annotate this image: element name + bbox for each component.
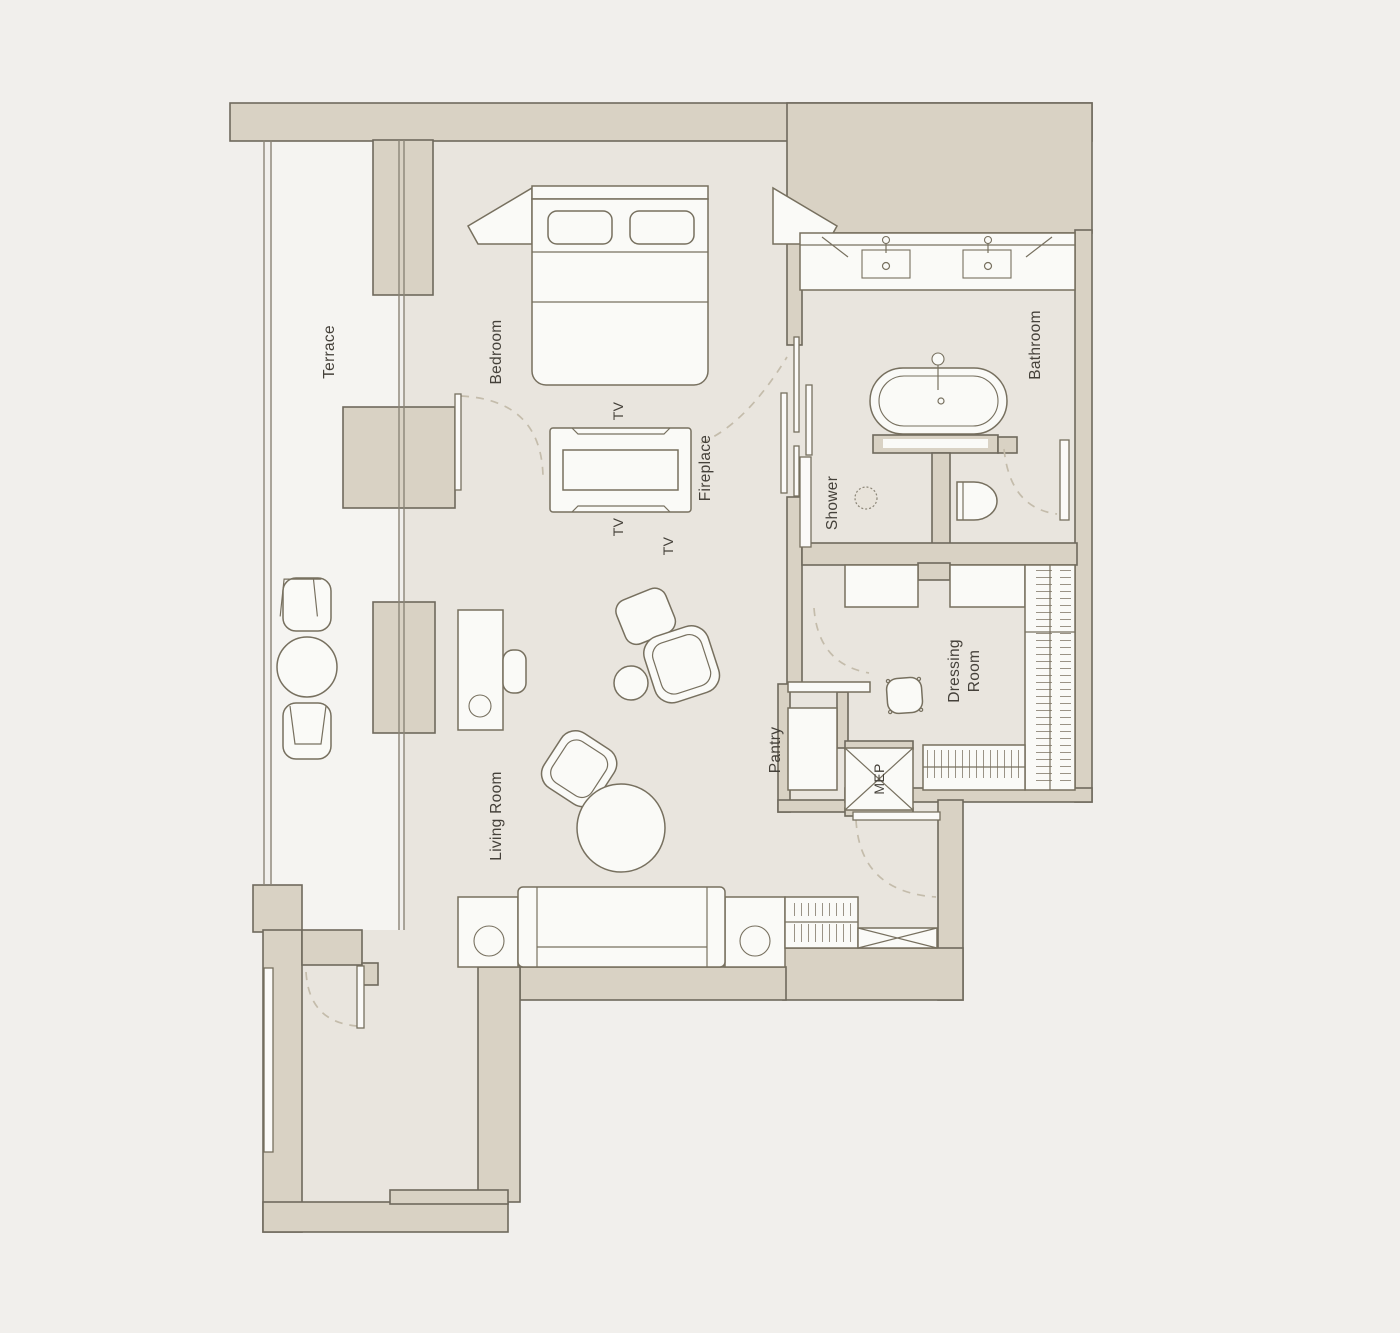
sofa xyxy=(518,887,725,967)
fireplace-tv-console xyxy=(550,428,691,512)
vanity xyxy=(800,233,1075,290)
sink-right xyxy=(963,250,1011,278)
foyer-east-wall xyxy=(478,967,520,1202)
sink-left xyxy=(862,250,910,278)
slat-3 xyxy=(794,446,799,496)
foyer-south-step xyxy=(390,1190,508,1204)
terrace-south-pier xyxy=(253,885,302,932)
east-wall xyxy=(1075,230,1092,802)
south-wall-mid xyxy=(520,967,786,1000)
terrace-set xyxy=(277,578,337,759)
toilet xyxy=(957,482,997,520)
fireplace-insert xyxy=(563,450,678,490)
bath-dressing-wall xyxy=(802,543,1077,565)
headboard xyxy=(532,186,708,199)
faucet-right xyxy=(985,237,992,244)
slat-2 xyxy=(794,337,799,432)
closet-stub xyxy=(918,563,950,580)
coffee-table xyxy=(577,784,665,872)
foyer-north-wall xyxy=(302,930,362,965)
pantry-cabinet xyxy=(788,708,837,790)
floor-plan-drawing xyxy=(0,0,1400,1333)
pillow-left xyxy=(548,211,612,244)
west-pier-top xyxy=(373,140,433,295)
dressing-stool xyxy=(886,677,923,714)
entry-door-leaf xyxy=(357,966,364,1028)
mep-shaft xyxy=(845,748,913,810)
tub-screen-inner xyxy=(883,439,988,448)
south-wall-east xyxy=(783,948,963,1000)
foyer-floor xyxy=(302,963,478,1202)
floor-plan: Terrace Bedroom TV TV TV Fireplace Bathr… xyxy=(0,0,1400,1333)
wc-door-leaf xyxy=(1060,440,1069,520)
pantry-east-wall xyxy=(837,692,848,748)
faucet-left xyxy=(883,237,890,244)
hall-door-leaf xyxy=(853,812,940,820)
north-east-wall-block xyxy=(787,103,1092,233)
pantry-south-wall xyxy=(778,800,853,812)
vanity-counter xyxy=(800,233,1075,290)
slat-1 xyxy=(781,393,787,493)
foyer-south-wall xyxy=(263,1202,508,1232)
lower-terrace-window xyxy=(264,968,273,1152)
wc-stub-wall xyxy=(998,437,1017,453)
terrace-chair-1 xyxy=(283,578,331,631)
desk-chair xyxy=(503,650,526,693)
slat-4 xyxy=(806,385,812,455)
shower-wc-wall xyxy=(932,453,950,548)
shower-drain-icon xyxy=(855,487,877,509)
closet-north-right xyxy=(950,565,1025,607)
sofa-lamp-right xyxy=(740,926,770,956)
closet-north-left xyxy=(845,565,918,607)
tub-faucet xyxy=(932,353,944,365)
shower-glass-panel xyxy=(800,457,811,547)
pillow-right xyxy=(630,211,694,244)
sofa-lamp-left xyxy=(474,926,504,956)
terrace-table xyxy=(277,637,337,697)
side-table xyxy=(614,666,648,700)
pantry-counter xyxy=(788,682,870,692)
bedroom-terrace-door-leaf xyxy=(455,394,461,490)
desk-lamp xyxy=(469,695,491,717)
